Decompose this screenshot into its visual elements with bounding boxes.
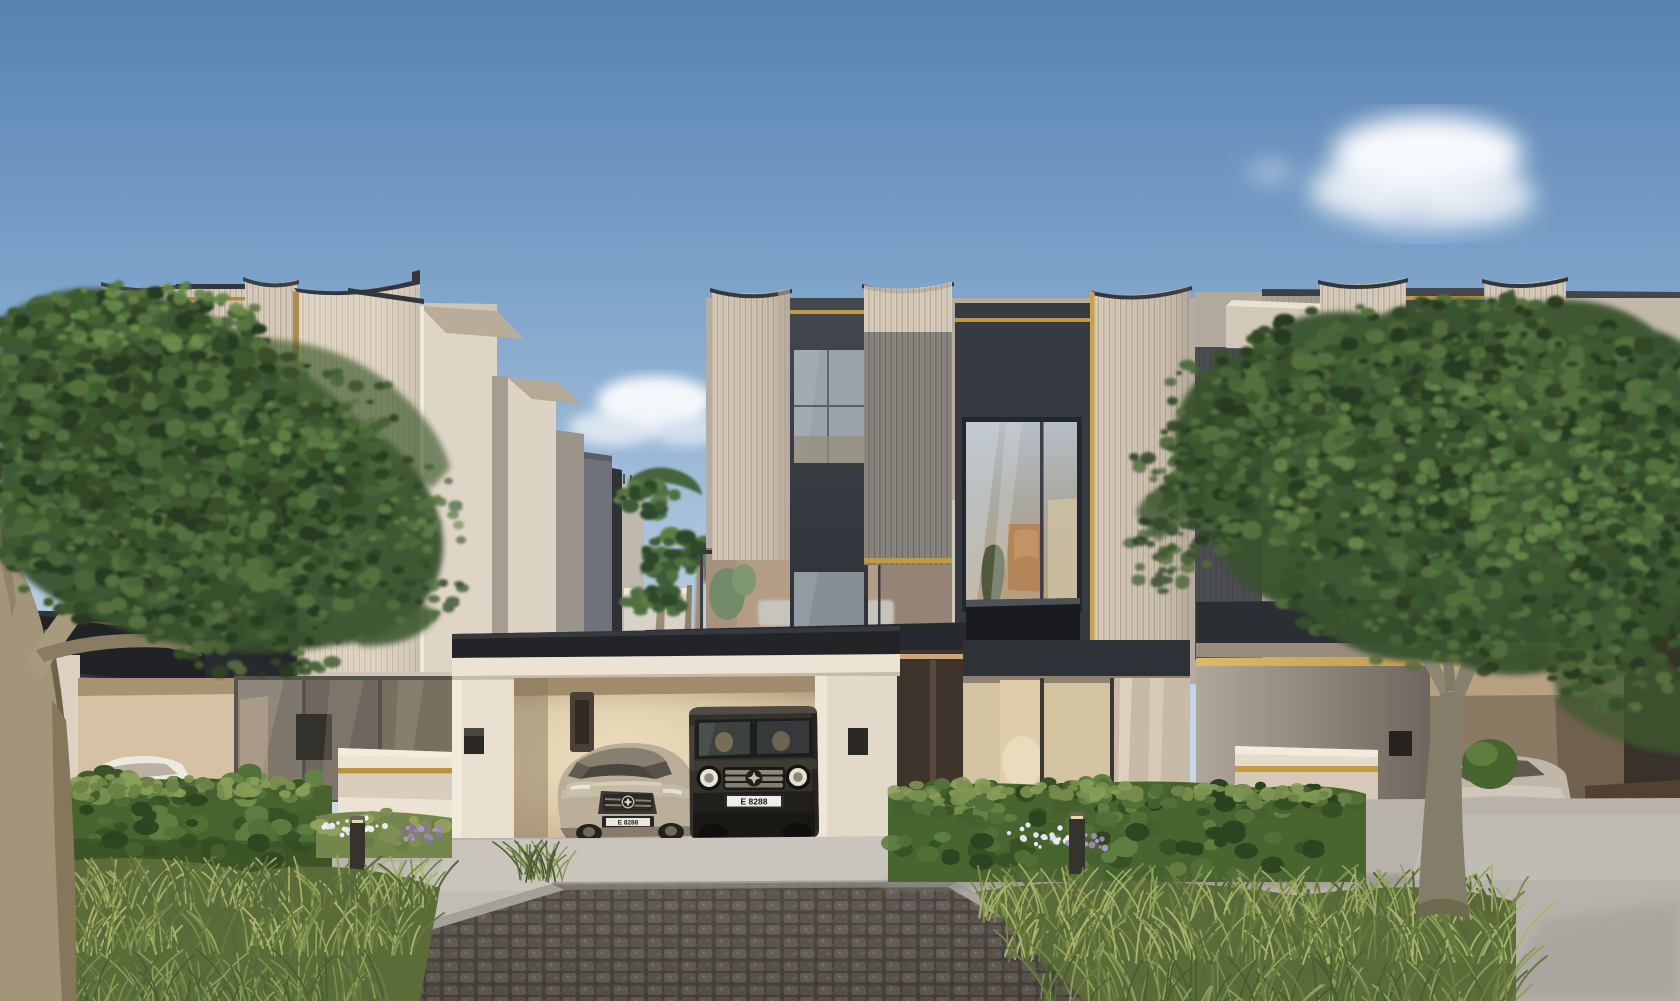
svg-text:E 8288: E 8288: [618, 820, 639, 827]
svg-text:E 8288: E 8288: [741, 797, 768, 807]
